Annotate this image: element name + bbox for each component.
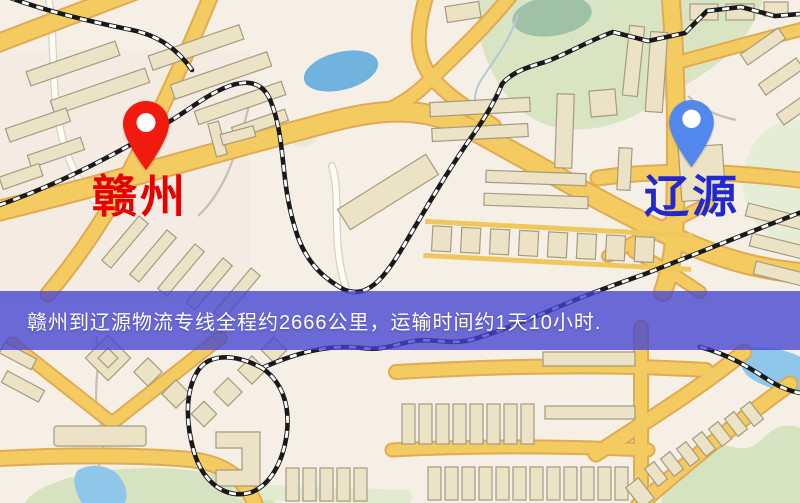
origin-pin-hole bbox=[137, 113, 156, 132]
map-view: 赣州 辽源 赣州到辽源物流专线全程约2666公里，运输时间约1天10小时. bbox=[0, 0, 800, 503]
map-canvas[interactable] bbox=[0, 0, 800, 503]
destination-pin-icon[interactable] bbox=[669, 100, 714, 167]
origin-pin-body bbox=[123, 101, 169, 170]
destination-label: 辽源 bbox=[644, 175, 740, 220]
route-banner-text: 赣州到辽源物流专线全程约2666公里，运输时间约1天10小时. bbox=[0, 306, 601, 335]
destination-pin-hole bbox=[682, 110, 700, 128]
origin-pin-icon[interactable] bbox=[123, 101, 169, 170]
route-banner: 赣州到辽源物流专线全程约2666公里，运输时间约1天10小时. bbox=[0, 291, 800, 350]
origin-label: 赣州 bbox=[92, 175, 188, 220]
